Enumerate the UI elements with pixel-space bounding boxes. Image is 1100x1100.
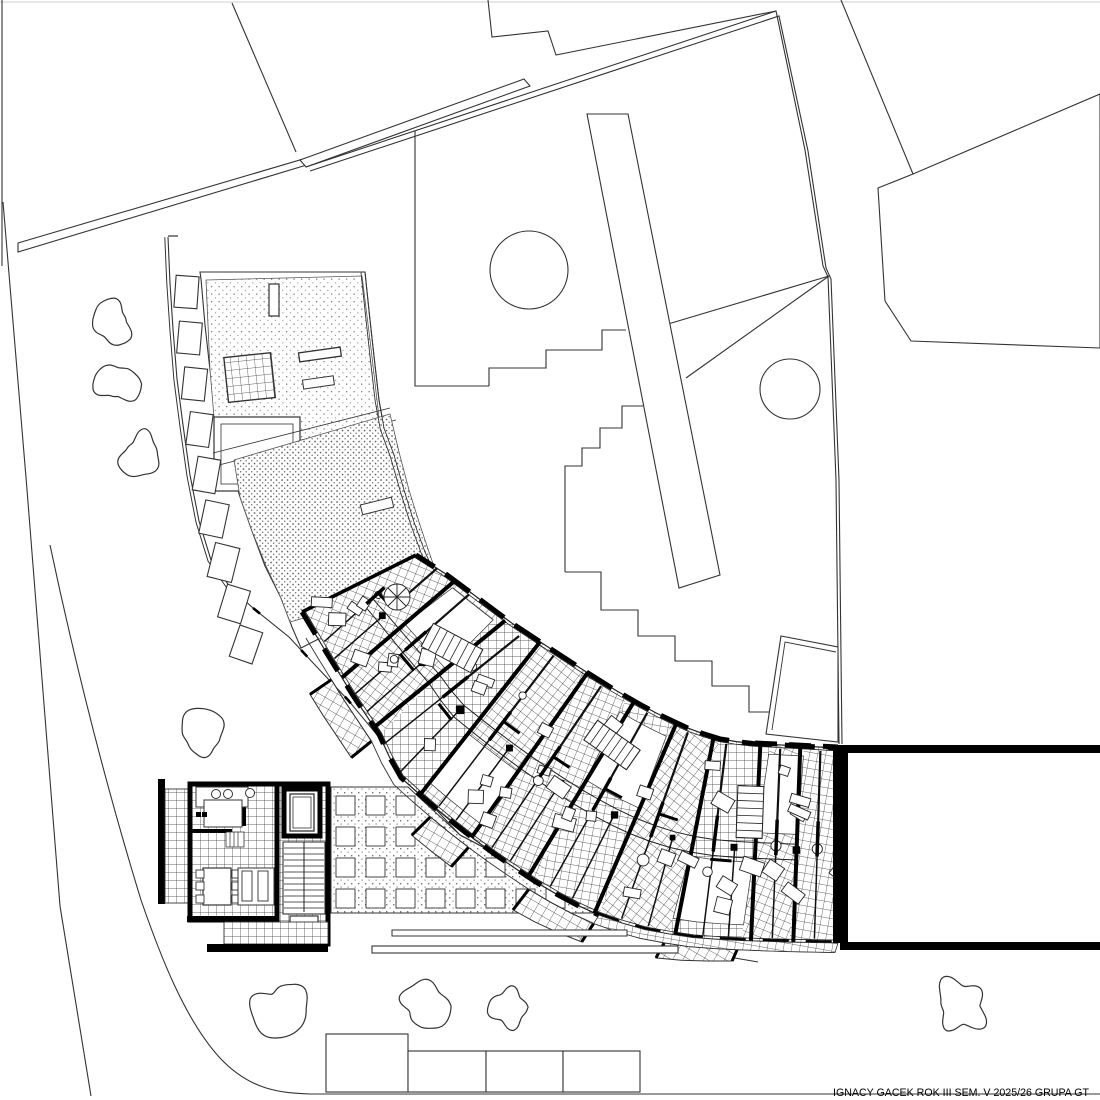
svg-text:IGNACY GACEK ROK III SEM. V 20: IGNACY GACEK ROK III SEM. V 2025/26 GRUP… (833, 1087, 1089, 1099)
